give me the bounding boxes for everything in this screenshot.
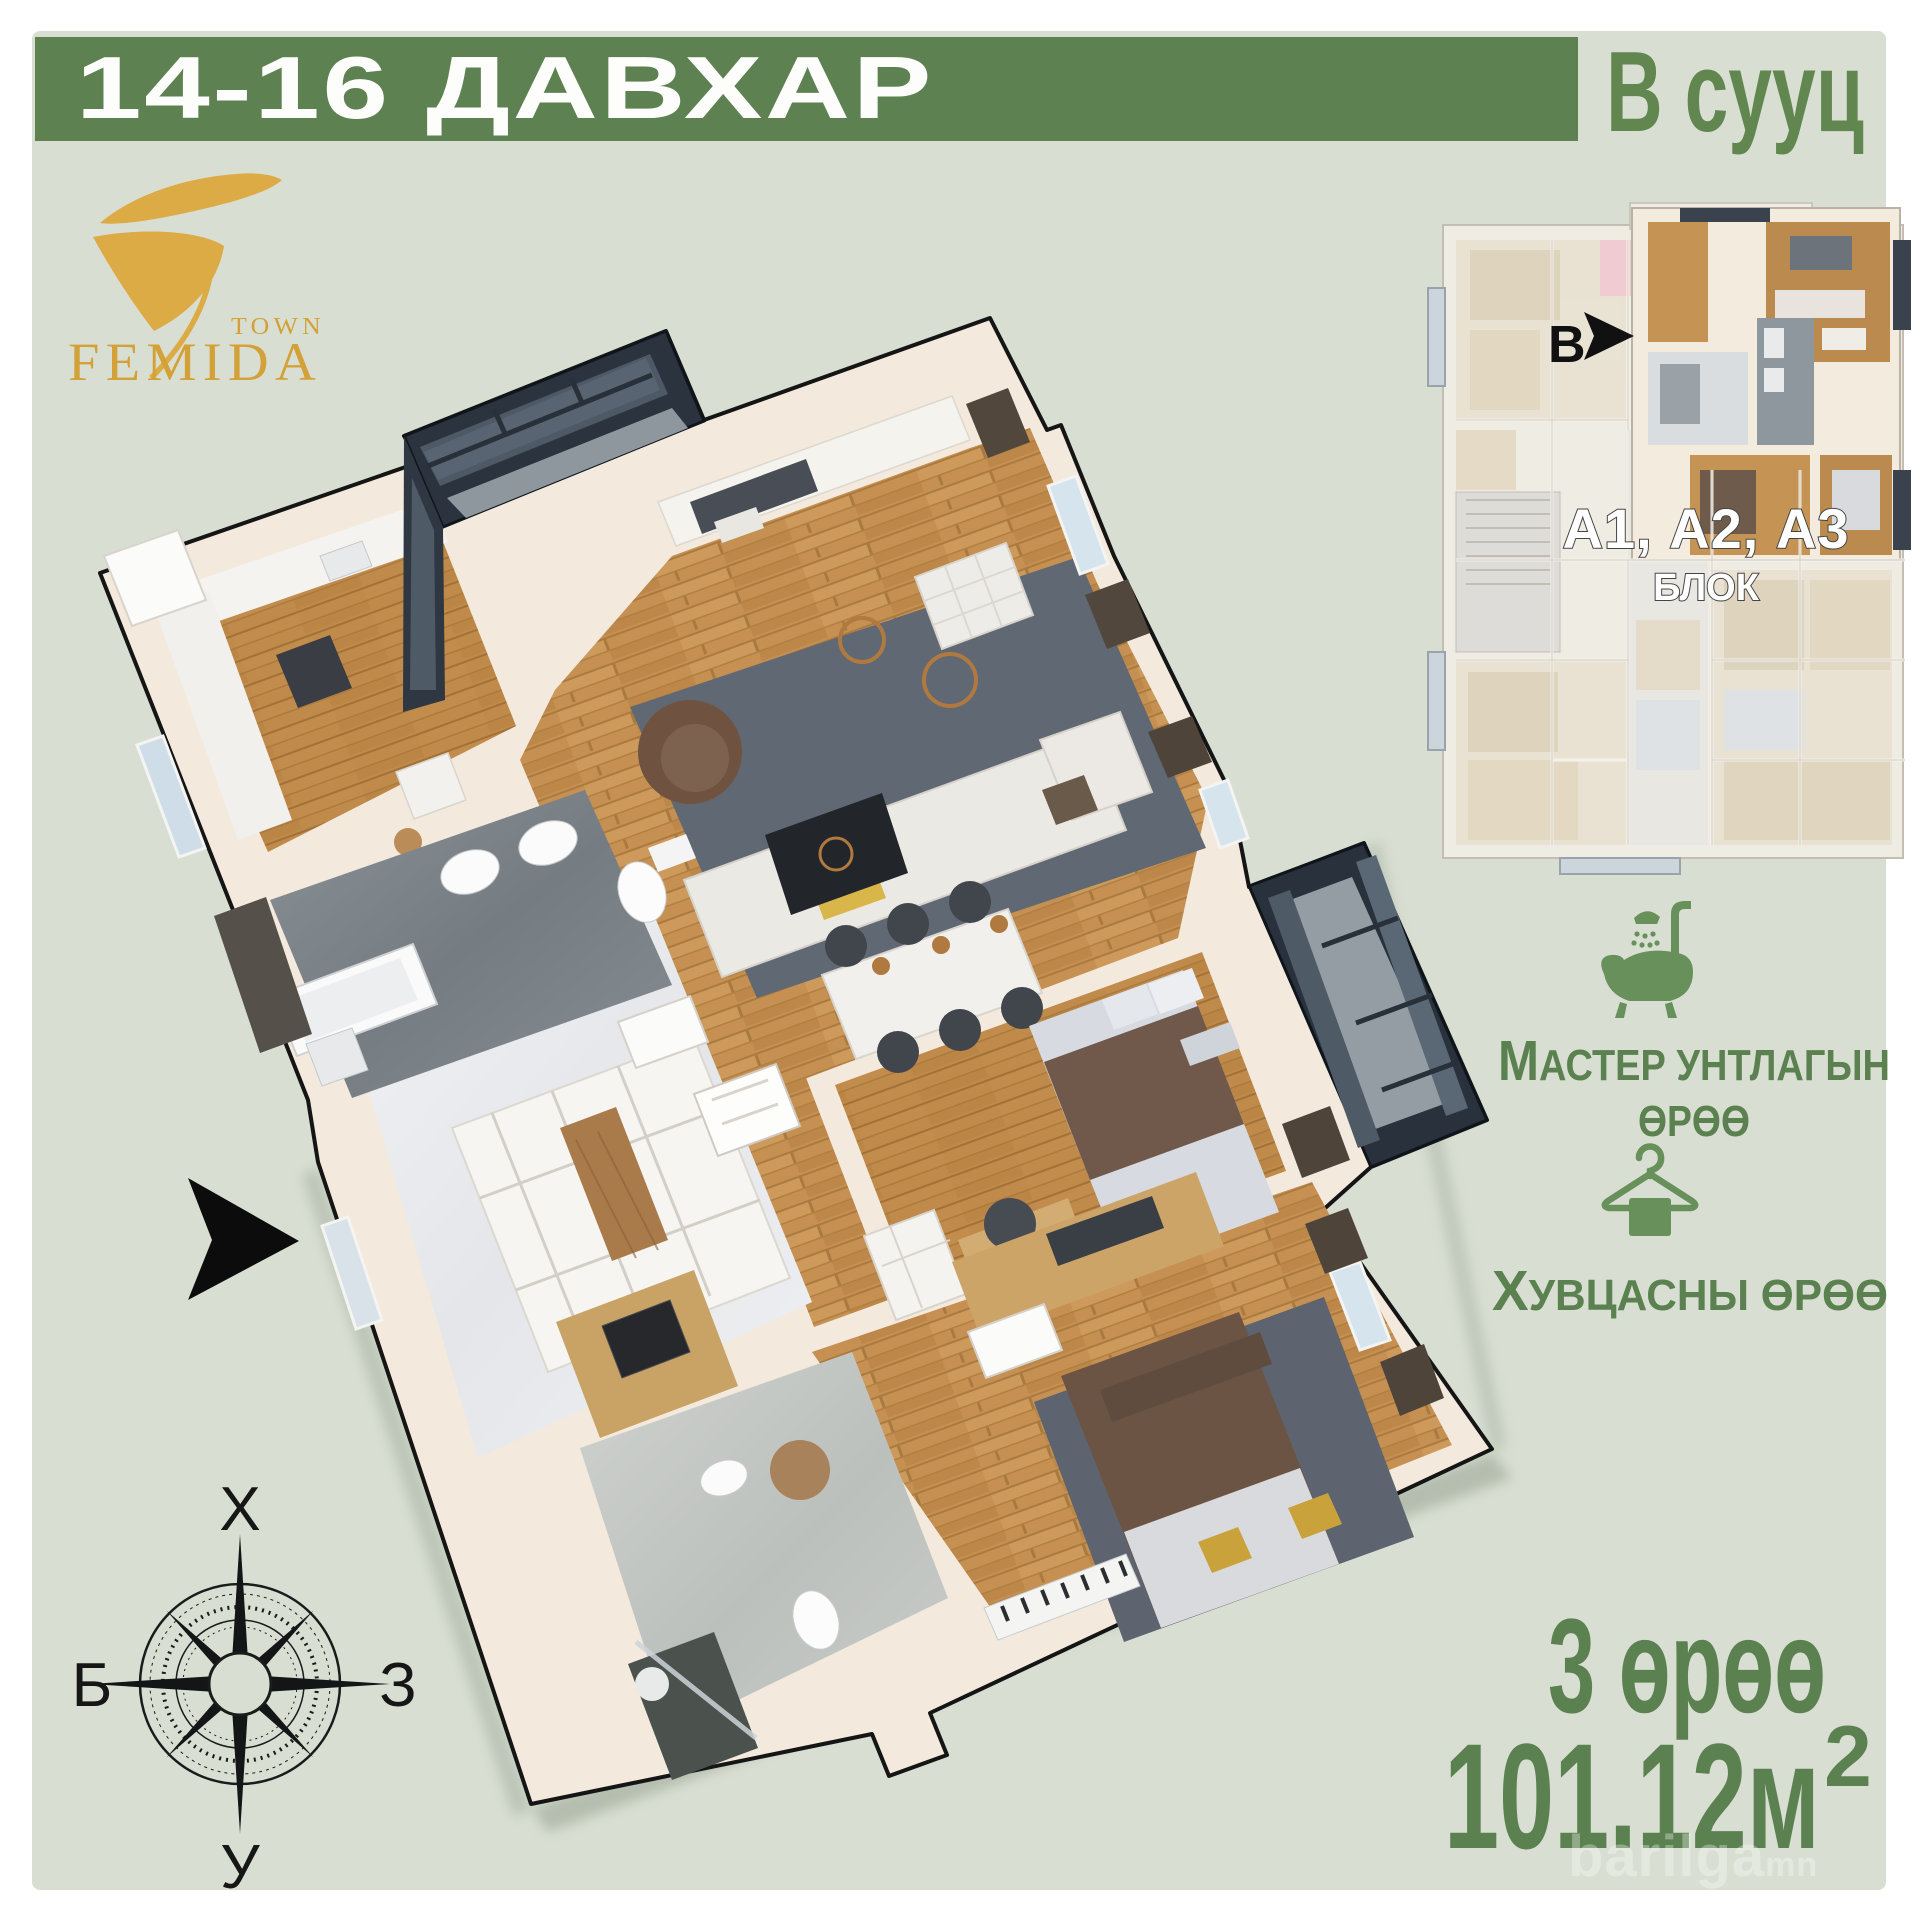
svg-text:У: У bbox=[220, 1833, 260, 1902]
svg-text:В: В bbox=[1548, 316, 1586, 374]
svg-text:FEMIDA: FEMIDA bbox=[68, 332, 322, 392]
svg-text:БЛОК: БЛОК bbox=[1653, 567, 1760, 609]
svg-text:2: 2 bbox=[1824, 1709, 1872, 1805]
svg-text:ӨРӨӨ: ӨРӨӨ bbox=[1638, 1097, 1750, 1146]
svg-text:Б: Б bbox=[72, 1651, 113, 1720]
svg-text:А1, А2, А3: А1, А2, А3 bbox=[1563, 497, 1850, 560]
svg-text:В сууц: В сууц bbox=[1606, 29, 1864, 156]
svg-text:Х: Х bbox=[219, 1475, 260, 1544]
svg-text:14-16 ДАВХАР: 14-16 ДАВХАР bbox=[76, 38, 934, 137]
svg-text:З: З bbox=[379, 1651, 416, 1720]
